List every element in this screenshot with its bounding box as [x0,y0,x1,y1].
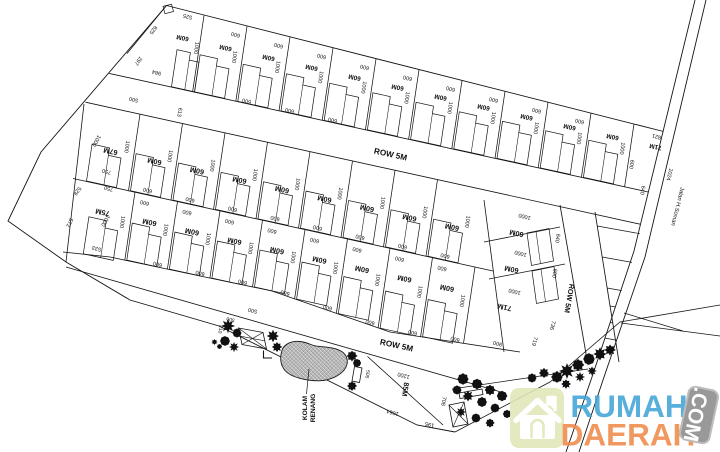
svg-text:DAERAH: DAERAH [561,417,696,452]
svg-text:KOLAM: KOLAM [302,395,309,420]
svg-text:RENANG: RENANG [310,394,317,423]
